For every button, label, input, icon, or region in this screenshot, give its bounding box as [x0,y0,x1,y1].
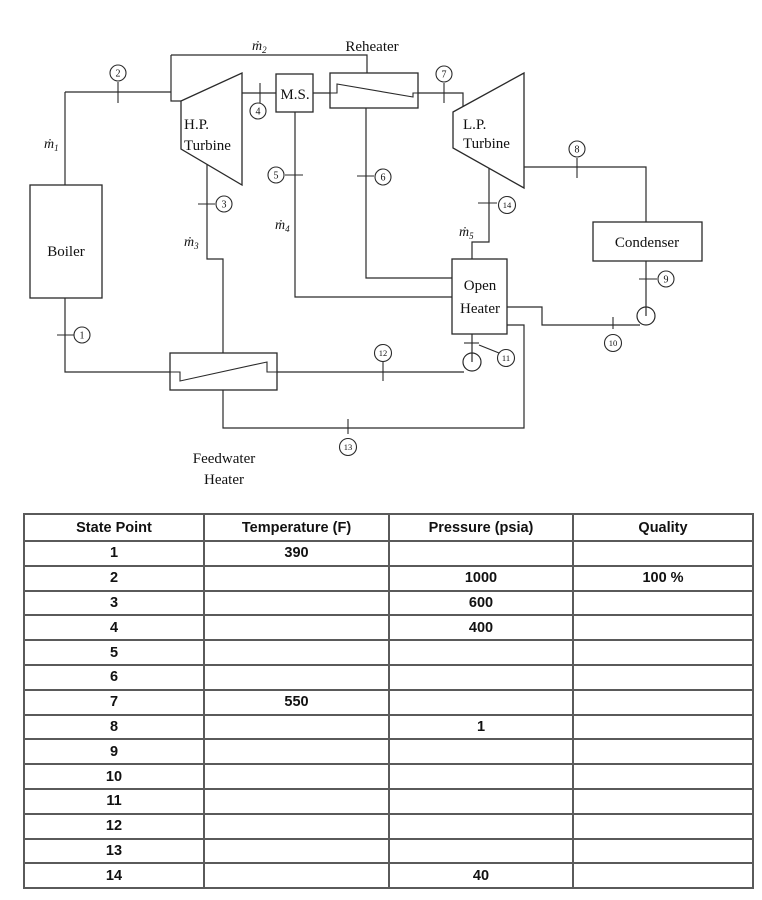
cell-state: 9 [24,739,204,764]
cell-pressure: 40 [389,863,573,888]
cell-pressure [389,690,573,715]
hp-turbine-label-line2: Turbine [184,138,231,154]
cell-state: 1 [24,541,204,566]
cell-pressure [389,665,573,690]
cell-quality [573,764,753,789]
column-header-quality: Quality [573,514,753,541]
pipe-condensate-to-heater [507,307,640,325]
state-number-13: 13 [344,442,353,452]
cell-state: 5 [24,640,204,665]
state-markers [74,65,674,456]
pipe-state13-loop [223,325,524,428]
cell-state: 8 [24,715,204,740]
cell-pressure [389,839,573,864]
mdot1-label: ṁ1 [44,137,59,153]
rankine-cycle-diagram: 1 2 3 4 5 6 7 8 9 10 11 12 13 14 Reheate… [0,0,762,505]
state-number-11: 11 [502,353,510,363]
cell-state: 7 [24,690,204,715]
document-page: 1 2 3 4 5 6 7 8 9 10 11 12 13 14 Reheate… [0,0,762,900]
pipe-hp-inlet [171,55,181,101]
cell-temp [204,566,389,591]
cell-state: 3 [24,591,204,616]
cell-pressure: 400 [389,615,573,640]
state-number-14: 14 [503,200,512,210]
cell-quality [573,839,753,864]
boiler-box [30,185,102,298]
pipe-hp-extraction [207,164,223,353]
cell-quality [573,789,753,814]
state-number-8: 8 [575,145,580,156]
table-row: 8 1 [24,715,753,740]
table-row: 10 [24,764,753,789]
state-number-9: 9 [664,275,669,286]
state-point-table: State Point Temperature (F) Pressure (ps… [23,513,754,889]
column-header-pressure: Pressure (psia) [389,514,573,541]
reheater-label: Reheater [345,39,398,55]
cell-temp [204,715,389,740]
cell-temp: 390 [204,541,389,566]
cell-state: 13 [24,839,204,864]
cell-state: 12 [24,814,204,839]
cell-state: 4 [24,615,204,640]
cell-temp [204,739,389,764]
cell-quality [573,615,753,640]
cell-temp [204,764,389,789]
cell-state: 10 [24,764,204,789]
pipe-reheater-drain [366,108,452,278]
cell-pressure: 1000 [389,566,573,591]
state-number-10: 10 [609,338,618,348]
state-number-7: 7 [442,70,447,81]
cell-pressure [389,764,573,789]
table-row: 11 [24,789,753,814]
cell-quality [573,591,753,616]
table-row: 12 [24,814,753,839]
cell-quality [573,715,753,740]
cell-state: 14 [24,863,204,888]
cell-pressure [389,640,573,665]
state-number-12: 12 [379,348,388,358]
cell-quality [573,640,753,665]
cell-temp [204,839,389,864]
feedwater-heater-label-line1: Feedwater [193,451,255,467]
state-number-1: 1 [80,331,85,342]
cell-quality [573,739,753,764]
table-row: 3 600 [24,591,753,616]
boiler-label: Boiler [47,244,85,260]
state-number-5: 5 [274,171,279,182]
pipe-ms-drain [295,112,452,297]
cell-temp [204,863,389,888]
cell-quality [573,541,753,566]
open-heater-label-line2: Heater [460,301,500,317]
cell-pressure [389,739,573,764]
state-number-3: 3 [222,200,227,211]
state-number-2: 2 [116,69,121,80]
column-header-state-point: State Point [24,514,204,541]
state-ticks [57,82,657,434]
mdot2-label: ṁ2 [252,39,267,55]
hp-turbine-label-line1: H.P. [184,117,209,133]
pipe-lp-exhaust [524,167,646,222]
feedwater-heater-coil [170,362,277,381]
mdot5-label: ṁ5 [459,225,474,241]
pipe-mdot2-top [171,55,367,73]
table-row: 1 390 [24,541,753,566]
cell-state: 2 [24,566,204,591]
cell-temp [204,591,389,616]
cell-pressure: 600 [389,591,573,616]
header-row: State Point Temperature (F) Pressure (ps… [24,514,753,541]
cell-pressure [389,541,573,566]
mass-flow-labels: ṁ1 ṁ2 ṁ3 ṁ4 ṁ5 [44,39,474,251]
table-row: 14 40 [24,863,753,888]
pipes [65,55,646,428]
cell-quality [573,665,753,690]
pipe-lp-extraction [472,168,489,259]
lp-turbine-label-line1: L.P. [463,117,486,133]
open-heater-label-line1: Open [464,278,497,294]
cell-quality [573,814,753,839]
cell-temp [204,789,389,814]
mdot3-label: ṁ3 [184,235,199,251]
reheater-coil [330,84,418,97]
state-number-6: 6 [381,173,386,184]
state-numbers: 1 2 3 4 5 6 7 8 9 10 11 12 13 14 [80,69,669,453]
condenser-label: Condenser [615,235,679,251]
table-row: 7 550 [24,690,753,715]
cell-state: 6 [24,665,204,690]
cell-pressure [389,814,573,839]
cell-temp: 550 [204,690,389,715]
tick-11-leader [479,345,499,353]
cell-temp [204,615,389,640]
cell-quality [573,863,753,888]
lp-turbine-label-line2: Turbine [463,136,510,152]
table-row: 9 [24,739,753,764]
table-row: 5 [24,640,753,665]
cell-temp [204,665,389,690]
open-heater-box [452,259,507,334]
feedwater-heater-label-line2: Heater [204,472,244,488]
component-labels: Reheater Boiler H.P. Turbine M.S. L.P. T… [47,39,679,488]
table-row: 6 [24,665,753,690]
mdot4-label: ṁ4 [275,218,290,234]
column-header-temperature: Temperature (F) [204,514,389,541]
cell-temp [204,640,389,665]
cell-pressure [389,789,573,814]
cell-state: 11 [24,789,204,814]
table-row: 2 1000 100 % [24,566,753,591]
state-number-4: 4 [256,107,261,118]
cell-temp [204,814,389,839]
cell-quality [573,690,753,715]
table-row: 4 400 [24,615,753,640]
table-row: 13 [24,839,753,864]
cell-quality: 100 % [573,566,753,591]
moisture-separator-label: M.S. [280,87,309,103]
cell-pressure: 1 [389,715,573,740]
pipe-reheater-to-lp [418,93,463,106]
